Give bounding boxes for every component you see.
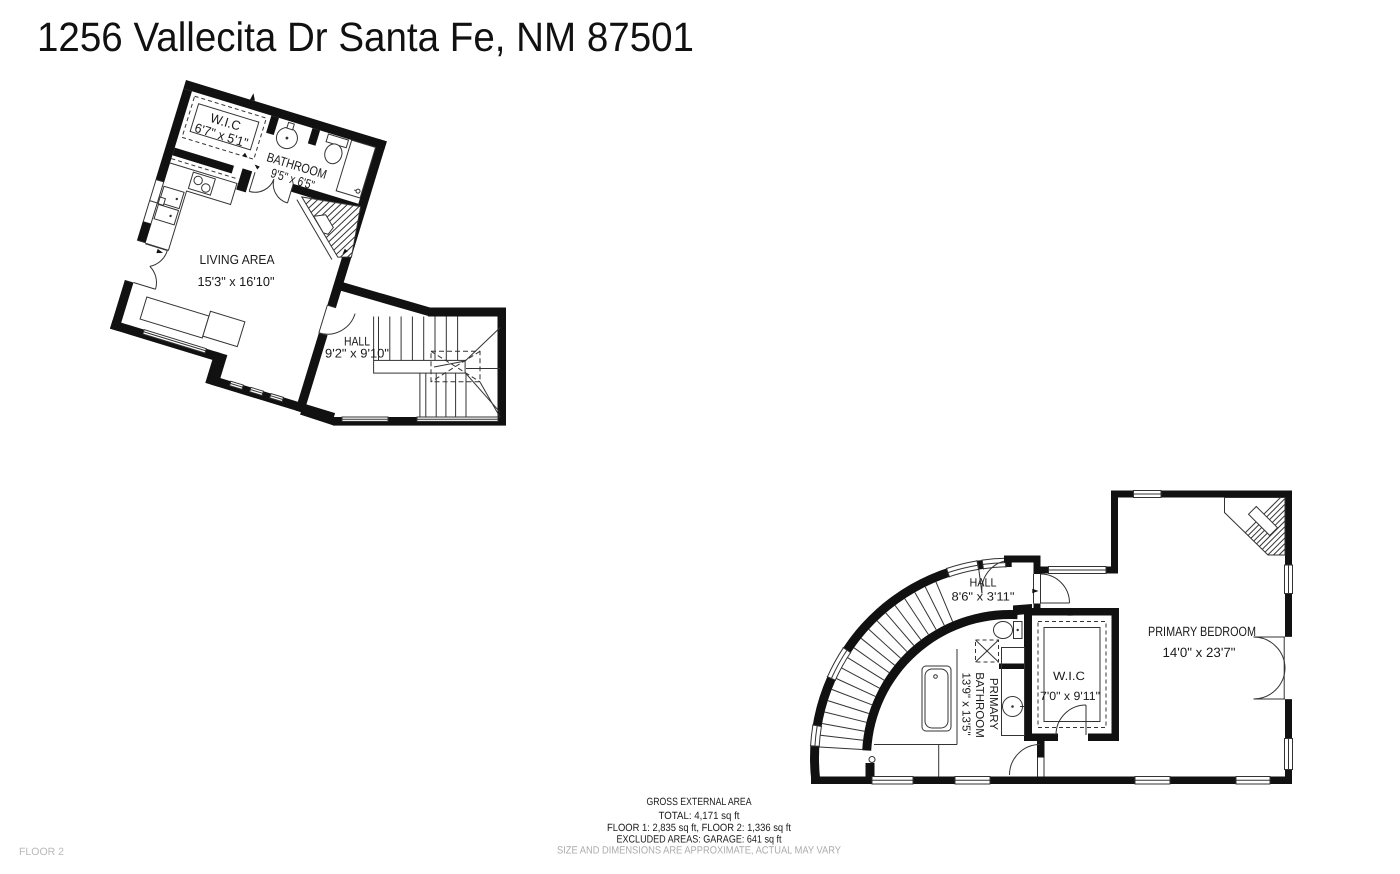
svg-text:9'2" x 9'10": 9'2" x 9'10": [325, 347, 389, 361]
svg-text:FLOOR 1: 2,835 sq ft, FLOOR 2:: FLOOR 1: 2,835 sq ft, FLOOR 2: 1,336 sq …: [607, 822, 791, 834]
svg-text:GROSS EXTERNAL AREA: GROSS EXTERNAL AREA: [647, 796, 752, 808]
svg-text:PRIMARY: PRIMARY: [987, 678, 999, 731]
svg-text:TOTAL: 4,171 sq ft: TOTAL: 4,171 sq ft: [659, 810, 740, 822]
svg-text:15'3" x 16'10": 15'3" x 16'10": [198, 274, 275, 289]
svg-text:FLOOR 2: FLOOR 2: [19, 846, 64, 858]
svg-text:7'0" x 9'11": 7'0" x 9'11": [1040, 689, 1100, 703]
svg-text:13'9" x 13'5": 13'9" x 13'5": [960, 672, 972, 735]
svg-text:1256 Vallecita Dr Santa Fe, NM: 1256 Vallecita Dr Santa Fe, NM 87501: [37, 14, 694, 60]
svg-text:HALL: HALL: [970, 576, 997, 590]
svg-text:SIZE AND DIMENSIONS ARE APPROX: SIZE AND DIMENSIONS ARE APPROXIMATE, ACT…: [557, 845, 841, 857]
svg-text:14'0" x 23'7": 14'0" x 23'7": [1163, 645, 1236, 660]
svg-text:W.I.C: W.I.C: [1053, 669, 1085, 683]
svg-text:BATHROOM: BATHROOM: [973, 672, 985, 738]
svg-text:LIVING AREA: LIVING AREA: [200, 252, 275, 267]
svg-text:PRIMARY BEDROOM: PRIMARY BEDROOM: [1148, 624, 1256, 639]
svg-text:8'6" x 3'11": 8'6" x 3'11": [952, 590, 1015, 604]
